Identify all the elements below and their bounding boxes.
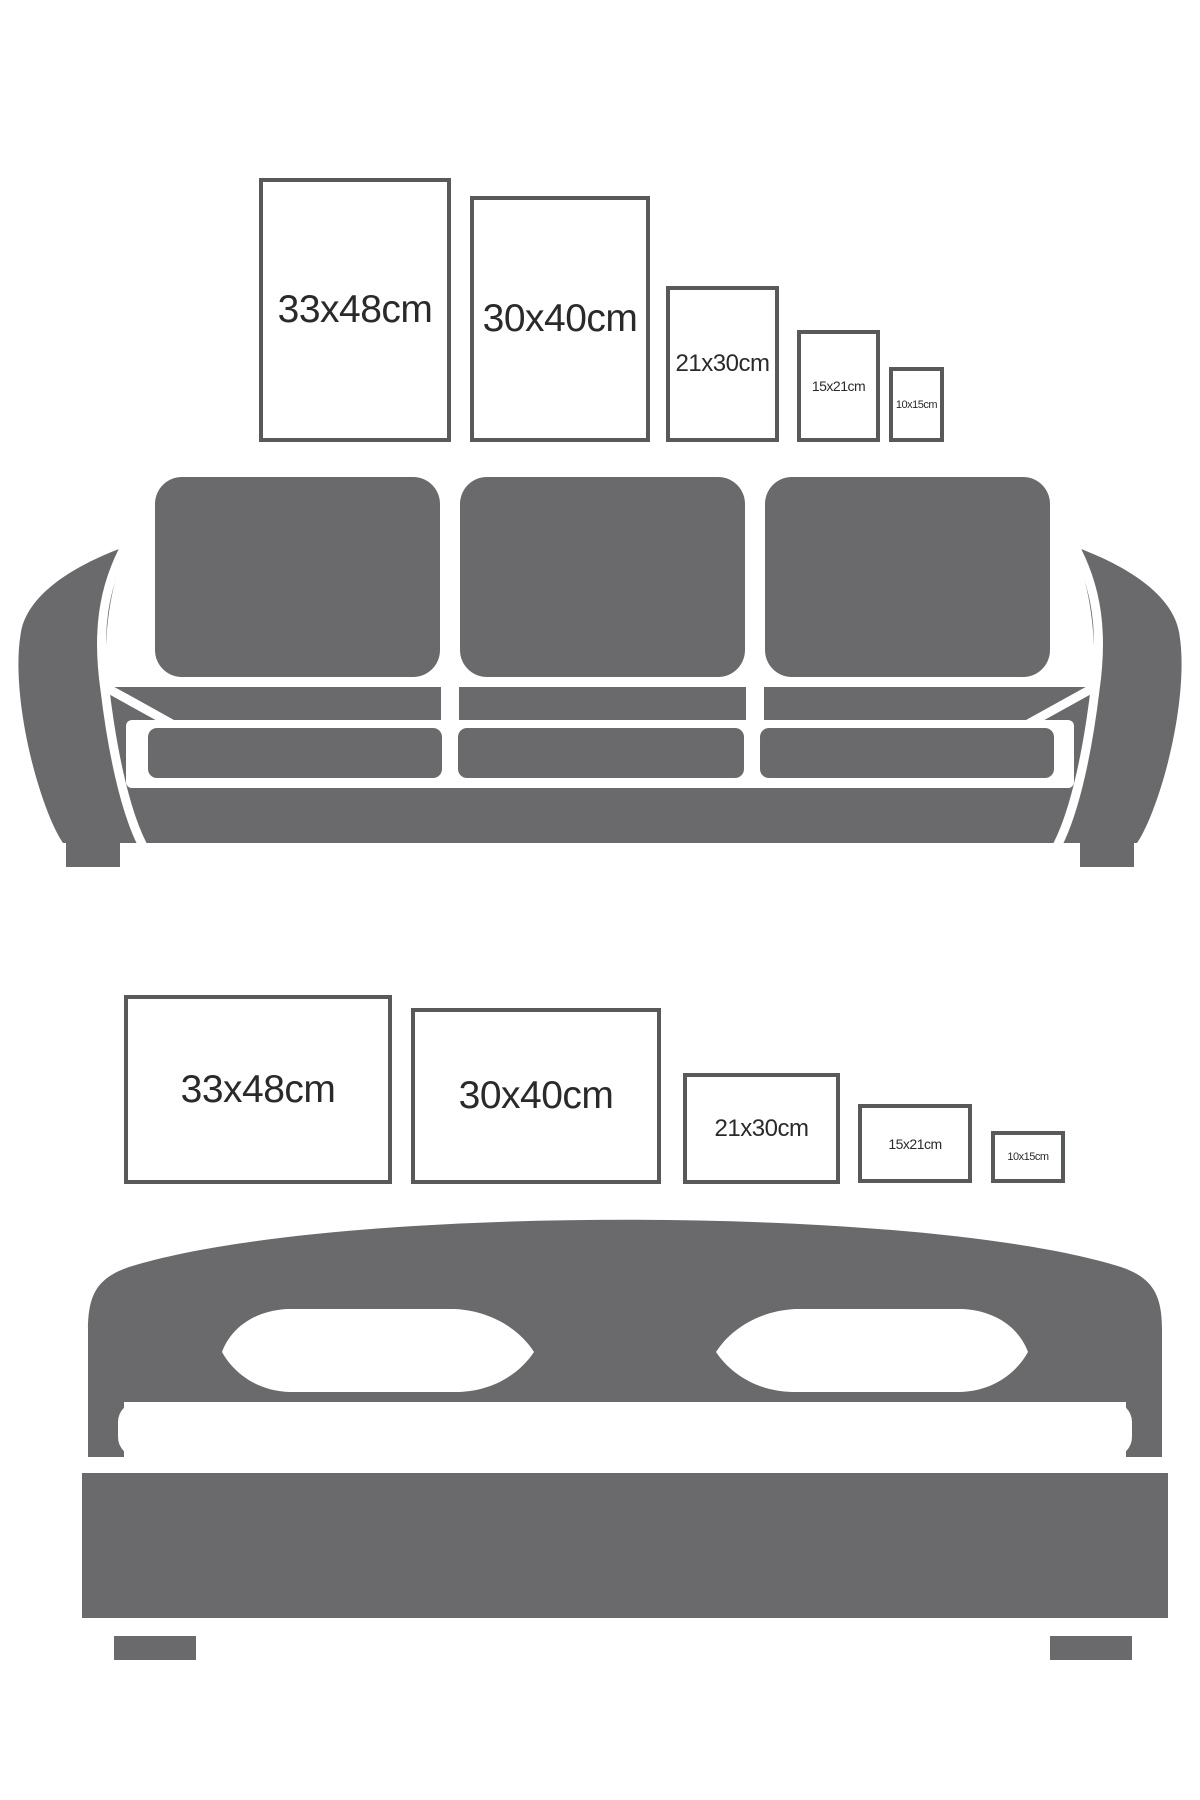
frame-size-label: 10x15cm: [896, 399, 937, 411]
bed-base: [82, 1473, 1168, 1618]
frame-30x40-landscape: 30x40cm: [411, 1008, 661, 1184]
bed-pillow-left: [222, 1309, 534, 1392]
frame-21x30-portrait: 21x30cm: [666, 286, 779, 442]
bed-leg-left: [114, 1636, 196, 1660]
frame-size-label: 15x21cm: [812, 378, 865, 394]
sofa-seat-cushion: [760, 728, 1054, 778]
frame-10x15-portrait: 10x15cm: [889, 367, 944, 442]
bed-leg-right: [1050, 1636, 1132, 1660]
frame-15x21-landscape: 15x21cm: [858, 1104, 972, 1183]
sofa-back-cushion: [460, 477, 745, 677]
sofa-back-cushion: [765, 477, 1050, 677]
frame-33x48-portrait: 33x48cm: [259, 178, 451, 442]
frame-10x15-landscape: 10x15cm: [991, 1131, 1065, 1183]
frame-size-label: 15x21cm: [888, 1136, 941, 1152]
frame-size-label: 10x15cm: [1007, 1151, 1048, 1163]
frame-15x21-portrait: 15x21cm: [797, 330, 880, 442]
frame-size-label: 33x48cm: [278, 288, 433, 332]
frame-size-label: 30x40cm: [483, 297, 638, 341]
sofa-leg-left: [66, 843, 120, 867]
sofa-back-cushion: [155, 477, 440, 677]
frame-size-label: 21x30cm: [715, 1115, 809, 1143]
sofa-seat-cushion: [148, 728, 442, 778]
bed-mattress: [118, 1402, 1132, 1457]
bed-icon: [0, 1212, 1200, 1672]
frame-size-label: 30x40cm: [459, 1074, 614, 1118]
frame-21x30-landscape: 21x30cm: [683, 1073, 840, 1184]
frame-30x40-portrait: 30x40cm: [470, 196, 650, 442]
sofa-back-seam: [100, 677, 1100, 687]
sofa-icon: [0, 440, 1200, 880]
sofa-seat-cushion: [458, 728, 744, 778]
frame-size-label: 33x48cm: [181, 1068, 336, 1112]
size-comparison-infographic: 33x48cm 30x40cm 21x30cm 15x21cm 10x15cm: [0, 0, 1200, 1800]
sofa-leg-right: [1080, 843, 1134, 867]
frame-size-label: 21x30cm: [676, 350, 770, 378]
bed-pillow-right: [716, 1309, 1028, 1392]
frame-33x48-landscape: 33x48cm: [124, 995, 392, 1184]
